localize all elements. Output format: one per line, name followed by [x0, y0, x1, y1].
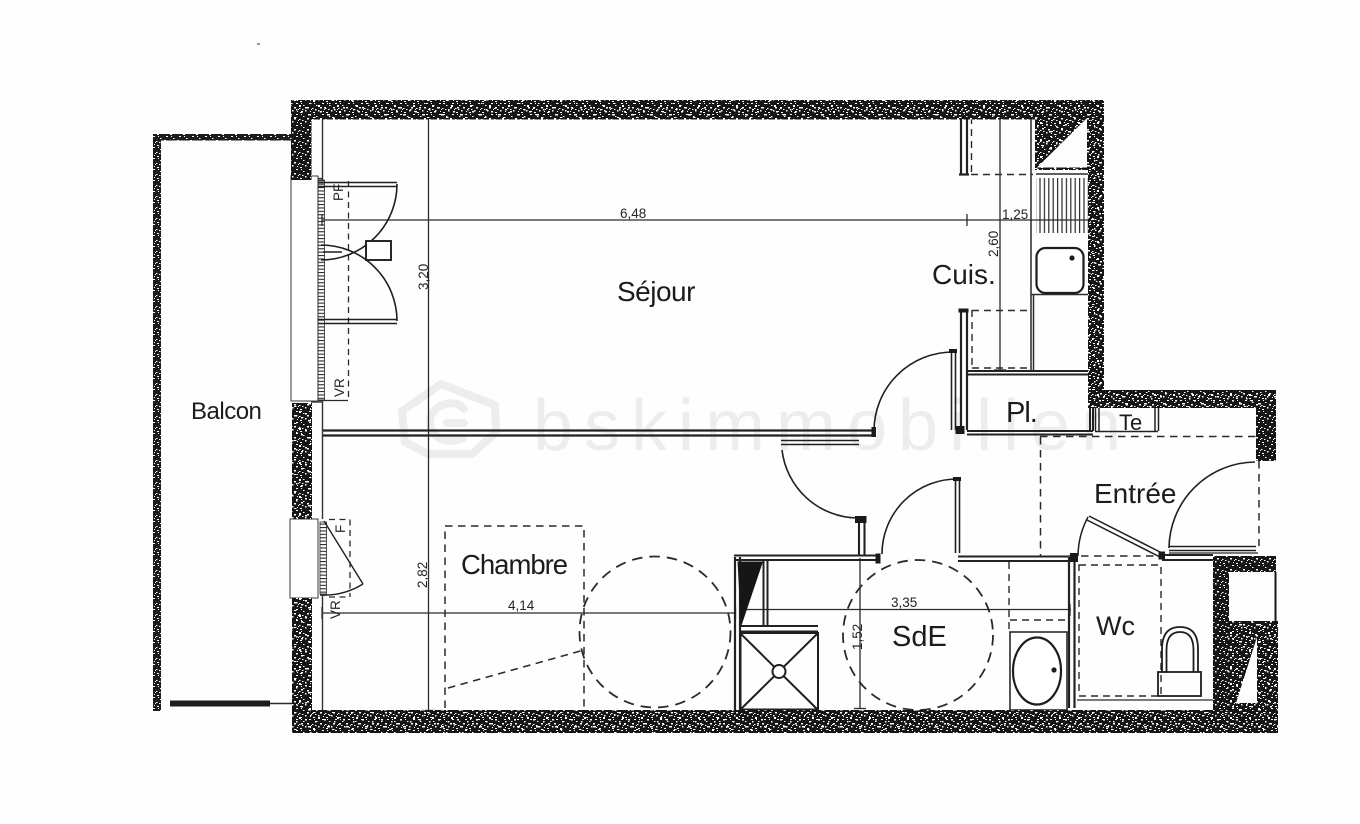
svg-text:F: F — [333, 525, 348, 533]
svg-text:3,20: 3,20 — [416, 264, 431, 290]
svg-text:3,35: 3,35 — [891, 595, 917, 610]
svg-text:bskimmobilien: bskimmobilien — [533, 386, 1132, 466]
svg-text:Cuis.: Cuis. — [932, 259, 996, 290]
svg-text:1,52: 1,52 — [850, 624, 865, 650]
svg-text:Séjour: Séjour — [617, 276, 695, 307]
svg-text:2,82: 2,82 — [415, 562, 430, 588]
svg-text:2,60: 2,60 — [986, 231, 1001, 257]
svg-text:VR: VR — [328, 600, 343, 619]
svg-text:4,14: 4,14 — [508, 598, 535, 613]
svg-text:SdE: SdE — [892, 621, 947, 653]
svg-text:Pl.: Pl. — [1006, 397, 1037, 429]
svg-text:Chambre: Chambre — [461, 549, 568, 580]
svg-text:1,25: 1,25 — [1002, 207, 1028, 222]
svg-text:Entrée: Entrée — [1094, 478, 1177, 509]
svg-text:Te: Te — [1119, 410, 1142, 435]
svg-text:Wc: Wc — [1096, 611, 1135, 641]
svg-text:6,48: 6,48 — [620, 206, 646, 221]
svg-text:Balcon: Balcon — [191, 398, 261, 425]
svg-text:PF: PF — [331, 184, 346, 201]
svg-text:VR: VR — [332, 378, 347, 397]
